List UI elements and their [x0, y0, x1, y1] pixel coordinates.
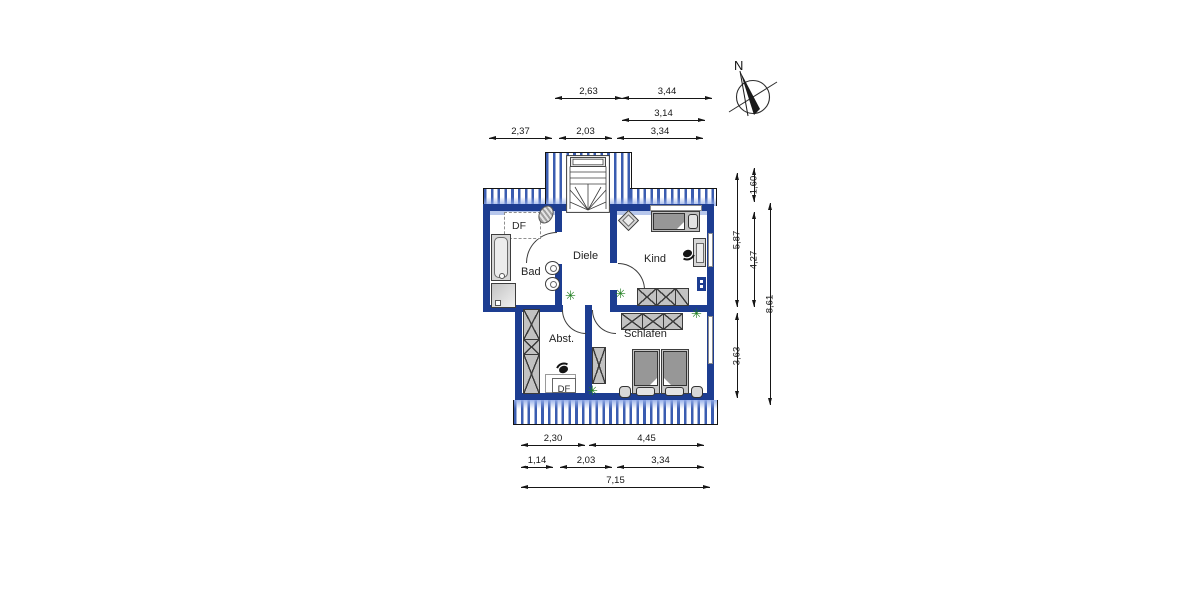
dimension-label: 2,03 — [575, 455, 598, 466]
door-arc-schlafen — [592, 310, 616, 334]
dimension-bot-a1: 2,30 — [521, 445, 585, 446]
door-arc-abst — [562, 310, 586, 334]
dimension-right-a2: 3,63 — [737, 313, 738, 398]
dimension-label: 3,14 — [652, 108, 675, 119]
dimension-label: 2,03 — [574, 126, 597, 137]
dimension-bot-b3: 3,34 — [617, 467, 704, 468]
dimension-top-c1: 2,37 — [489, 138, 552, 139]
dimension-label: 1,60 — [749, 163, 760, 207]
roof-band-bottom — [513, 400, 718, 425]
wardrobe-schlafen-left — [592, 347, 606, 384]
dimension-label: 5,87 — [732, 218, 743, 262]
wall-segment — [515, 305, 522, 400]
plant-icon: ✳ — [691, 307, 702, 320]
window-kind-right — [708, 233, 713, 267]
dimension-label: 2,63 — [577, 86, 600, 97]
dimension-label: 3,34 — [649, 126, 672, 137]
dimension-top-a2: 3,44 — [622, 98, 712, 99]
dimension-label: 8,61 — [765, 282, 776, 326]
dimension-top-c2: 2,03 — [559, 138, 612, 139]
room-label-abst: Abst. — [549, 333, 574, 345]
dimension-top-a1: 2,63 — [555, 98, 622, 99]
sink — [545, 277, 560, 291]
north-label: N — [734, 58, 743, 73]
dimension-right-c1: 8,61 — [770, 203, 771, 405]
plant-icon: ✳ — [615, 287, 626, 300]
dimension-label: 2,30 — [542, 433, 565, 444]
roof-window-bad-label: DF — [512, 220, 526, 232]
north-arrow: N — [724, 56, 784, 120]
dimension-bot-c1: 7,15 — [521, 487, 710, 488]
dimension-label: 2,37 — [509, 126, 532, 137]
dimension-label: 4,27 — [749, 238, 760, 282]
wall-segment — [610, 205, 617, 263]
double-bed — [619, 349, 704, 399]
dimension-label: 3,44 — [656, 86, 679, 97]
dimension-label: 3,34 — [649, 455, 672, 466]
room-label-bad: Bad — [521, 266, 541, 278]
dimension-top-c3: 3,34 — [617, 138, 703, 139]
bed-kind — [651, 211, 700, 232]
plant-icon: ✳ — [565, 289, 576, 302]
bathtub — [491, 234, 511, 281]
wardrobe-kind — [637, 288, 689, 306]
dimension-top-b1: 3,14 — [622, 120, 705, 121]
dimension-right-b2: 4,27 — [754, 212, 755, 307]
dimension-right-a1: 5,87 — [737, 173, 738, 307]
sink — [545, 261, 560, 275]
dimension-label: 3,63 — [732, 334, 743, 378]
dimension-label: 7,15 — [604, 475, 627, 486]
room-label-diele: Diele — [573, 250, 598, 262]
dimension-bot-a2: 4,45 — [589, 445, 704, 446]
roof-window-abst-label: DF — [558, 384, 571, 395]
dimension-label: 1,14 — [526, 455, 549, 466]
staircase — [566, 155, 610, 213]
floor-plan-canvas: DF — [0, 0, 1200, 600]
radiator-kind — [697, 277, 706, 291]
dimension-bot-b2: 2,03 — [560, 467, 612, 468]
room-label-kind: Kind — [644, 253, 666, 265]
dimension-right-b1: 1,60 — [754, 168, 755, 202]
wardrobe-abst — [523, 309, 540, 394]
room-label-schlafen: Schlafen — [624, 328, 667, 340]
dimension-bot-b1: 1,14 — [521, 467, 553, 468]
plant-icon: ✳ — [587, 384, 598, 397]
shower — [491, 283, 516, 308]
dimension-label: 4,45 — [635, 433, 658, 444]
window-schlafen-right — [708, 316, 713, 364]
wall-segment — [555, 204, 562, 232]
wall-segment — [483, 204, 490, 312]
